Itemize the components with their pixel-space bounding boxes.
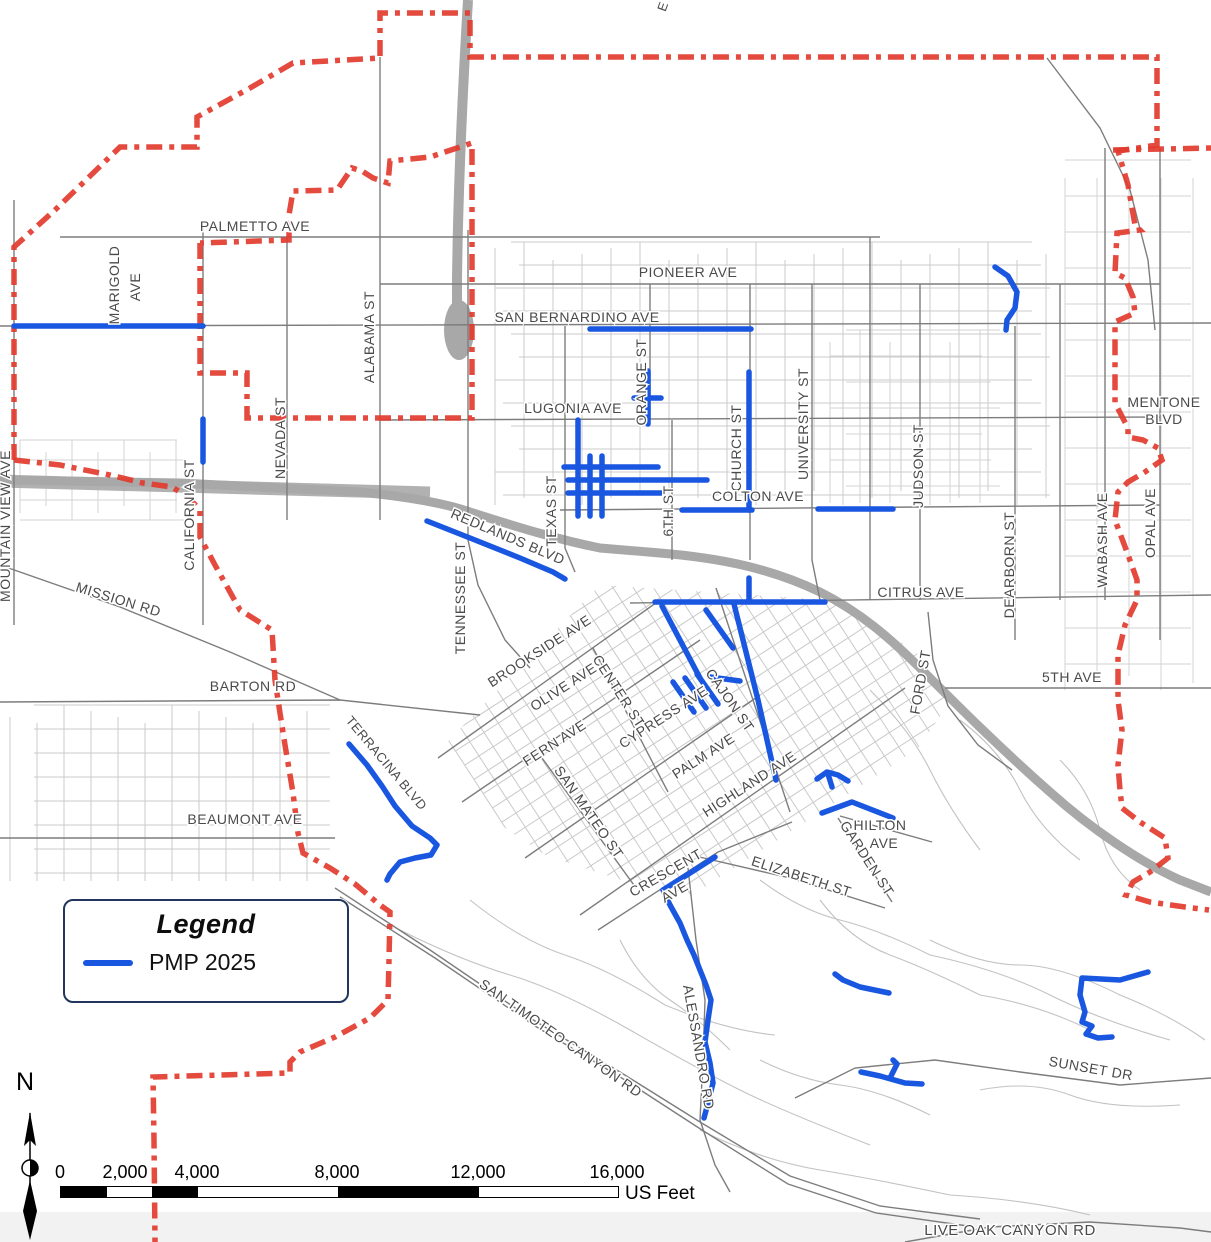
street-label: BLVD xyxy=(1145,411,1183,427)
scale-tick-3: 8,000 xyxy=(314,1162,359,1183)
street-label: ORANGE ST xyxy=(633,339,649,426)
legend-title: Legend xyxy=(65,909,347,940)
scale-tick-0: 0 xyxy=(55,1162,65,1183)
street-label: PALMETTO AVE xyxy=(200,218,310,234)
map-canvas: PALMETTO AVEMARIGOLDAVEPIONEER AVESAN BE… xyxy=(0,0,1211,1242)
street-label: 5TH AVE xyxy=(1042,669,1102,685)
street-label: TENNESSEE ST xyxy=(452,542,468,655)
scale-tick-1: 2,000 xyxy=(102,1162,147,1183)
street-label: MARIGOLD xyxy=(106,246,122,325)
street-label: UNIVERSITY ST xyxy=(795,368,811,480)
legend-item-label: PMP 2025 xyxy=(149,949,256,976)
scale-tick-2: 4,000 xyxy=(174,1162,219,1183)
scale-tick-4: 12,000 xyxy=(450,1162,505,1183)
street-label: MENTONE xyxy=(1127,394,1200,410)
street-label: SAN BERNARDINO AVE xyxy=(494,309,659,325)
street-label: AVE xyxy=(127,273,143,301)
street-label: CHURCH ST xyxy=(728,405,744,492)
legend-item-pmp-2025: PMP 2025 xyxy=(83,949,256,976)
legend-box: Legend PMP 2025 xyxy=(63,899,349,1003)
street-label: LIVE OAK CANYON RD xyxy=(924,1222,1096,1239)
street-label: MOUNTAIN VIEW AVE xyxy=(0,450,13,602)
scale-bar: 0 2,000 4,000 8,000 12,000 16,000 US Fee… xyxy=(0,1156,760,1216)
map-background xyxy=(0,0,1211,1242)
street-label: CALIFORNIA ST xyxy=(181,459,197,571)
street-label: ALABAMA ST xyxy=(361,291,377,383)
street-label: WABASH AVE xyxy=(1094,492,1110,587)
street-label: NEVADA ST xyxy=(272,397,288,479)
street-label: TEXAS ST xyxy=(543,475,559,547)
scale-unit-label: US Feet xyxy=(625,1183,695,1205)
street-label: LUGONIA AVE xyxy=(524,400,622,416)
street-label: DEARBORN ST xyxy=(1001,512,1017,619)
street-label: HILTON xyxy=(853,817,906,833)
map-page: PALMETTO AVEMARIGOLDAVEPIONEER AVESAN BE… xyxy=(0,0,1211,1242)
street-label: PIONEER AVE xyxy=(639,264,738,280)
street-label: BARTON RD xyxy=(210,678,296,694)
street-label: AVE xyxy=(870,835,898,851)
street-label: CITRUS AVE xyxy=(877,584,964,600)
street-label: JUDSON ST xyxy=(910,424,926,508)
street-label: OPAL AVE xyxy=(1142,488,1158,558)
street-label: COLTON AVE xyxy=(712,488,804,504)
scale-tick-5: 16,000 xyxy=(589,1162,644,1183)
scale-strip xyxy=(60,1186,619,1198)
street-label: BEAUMONT AVE xyxy=(187,811,302,827)
street-label: 6TH ST xyxy=(660,485,676,536)
pmp-line-swatch xyxy=(83,960,133,966)
